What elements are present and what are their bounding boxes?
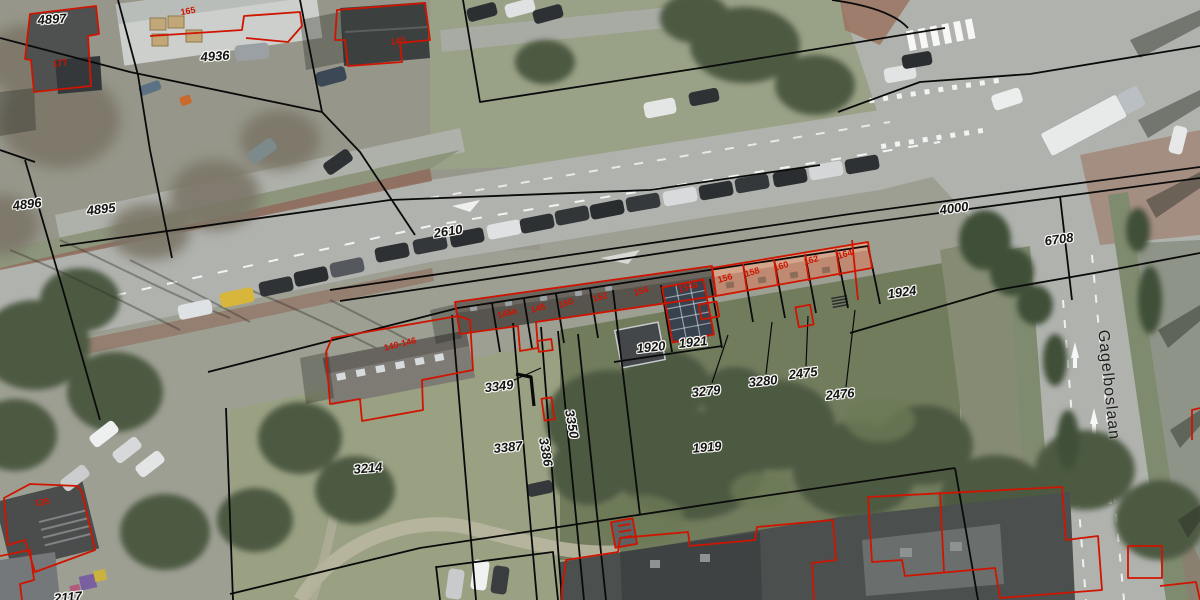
aerial-basemap <box>0 0 1200 600</box>
map-canvas[interactable]: Gagelboslaan 489749364896489526104000670… <box>0 0 1200 600</box>
